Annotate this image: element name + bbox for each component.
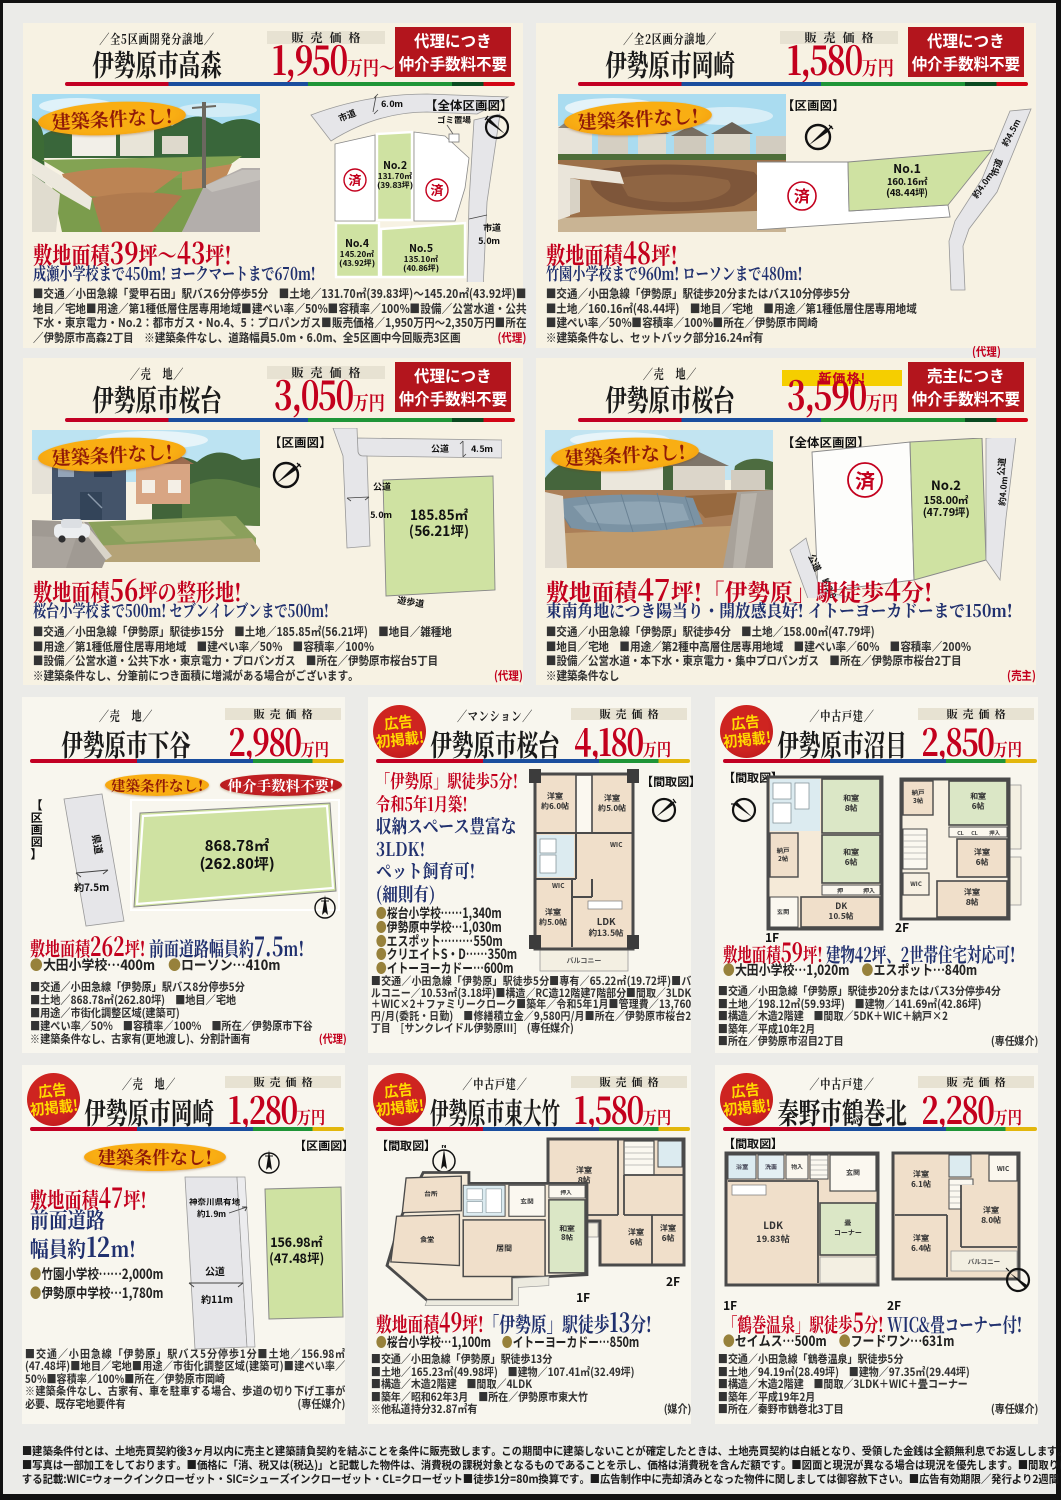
svg-text:公道: 公道	[205, 1263, 226, 1278]
svg-text:(262.80坪): (262.80坪)	[199, 853, 275, 874]
svg-text:バルコニー: バルコニー	[567, 956, 602, 966]
svg-text:10.5帖: 10.5帖	[829, 911, 854, 922]
svg-text:6帖: 6帖	[662, 1233, 675, 1244]
svg-text:約13.5帖: 約13.5帖	[589, 927, 624, 939]
svg-text:押: 押	[837, 886, 844, 895]
svg-text:(48.44坪): (48.44坪)	[886, 185, 929, 199]
svg-text:約7.5m: 約7.5m	[74, 879, 109, 894]
svg-text:6帖: 6帖	[630, 1237, 643, 1248]
svg-text:市道: 市道	[483, 221, 501, 234]
svg-text:WIC: WIC	[552, 880, 564, 890]
svg-text:6.0m: 6.0m	[381, 97, 404, 110]
svg-text:3帖: 3帖	[912, 795, 924, 805]
svg-text:済: 済	[855, 465, 875, 494]
svg-text:6.4帖: 6.4帖	[911, 1243, 931, 1254]
svg-text:19.83帖: 19.83帖	[756, 1232, 789, 1245]
svg-text:(39.83坪): (39.83坪)	[377, 180, 414, 191]
svg-text:済: 済	[348, 170, 361, 189]
svg-text:神奈川県有地: 神奈川県有地	[188, 1196, 241, 1208]
svg-text:居間: 居間	[495, 1243, 512, 1254]
svg-text:2帖: 2帖	[777, 853, 789, 863]
svg-text:食堂: 食堂	[420, 1235, 434, 1245]
svg-text:WIC: WIC	[910, 879, 921, 888]
svg-text:8.0帖: 8.0帖	[981, 1215, 1001, 1226]
svg-text:6帖: 6帖	[972, 801, 985, 812]
svg-text:8帖: 8帖	[845, 803, 858, 814]
svg-text:約11m: 約11m	[201, 1291, 233, 1306]
svg-text:済: 済	[794, 183, 810, 207]
svg-text:公道: 公道	[431, 442, 449, 455]
svg-text:物入: 物入	[791, 1162, 803, 1171]
svg-text:約4.0m: 約4.0m	[996, 475, 1011, 506]
svg-text:済: 済	[430, 180, 443, 199]
svg-text:WIC: WIC	[997, 1163, 1009, 1173]
svg-text:浴室: 浴室	[735, 1162, 749, 1171]
svg-text:公道: 公道	[994, 457, 1009, 476]
svg-text:N: N	[441, 1145, 446, 1151]
svg-text:台所: 台所	[423, 1188, 438, 1198]
svg-text:洗面: 洗面	[764, 1162, 777, 1171]
svg-text:6帖: 6帖	[976, 857, 989, 868]
svg-text:ゴミ置場: ゴミ置場	[437, 114, 472, 126]
svg-text:約5.0帖: 約5.0帖	[538, 917, 567, 928]
svg-text:(47.48坪): (47.48坪)	[269, 1248, 324, 1267]
svg-text:(47.79坪): (47.79坪)	[923, 505, 970, 520]
svg-text:押入: 押入	[560, 1189, 572, 1197]
svg-text:約6.0帖: 約6.0帖	[540, 801, 569, 812]
svg-text:(40.86坪): (40.86坪)	[403, 263, 440, 274]
svg-text:8帖: 8帖	[561, 1232, 574, 1243]
svg-text:No.2: No.2	[931, 475, 961, 494]
svg-text:5.0m: 5.0m	[370, 508, 393, 521]
svg-text:8帖: 8帖	[966, 897, 979, 908]
svg-text:(56.21坪): (56.21坪)	[409, 520, 469, 540]
svg-text:玄関: 玄関	[520, 1196, 534, 1206]
svg-text:約5.0帖: 約5.0帖	[597, 803, 626, 814]
svg-text:6.1帖: 6.1帖	[911, 1179, 931, 1190]
svg-text:公道: 公道	[373, 480, 391, 493]
svg-text:玄関: 玄関	[846, 1168, 860, 1178]
svg-text:4.5m: 4.5m	[471, 442, 494, 455]
svg-text:バルコニー: バルコニー	[968, 1256, 1001, 1266]
svg-text:畳: 畳	[845, 1218, 852, 1228]
svg-text:玄関: 玄関	[776, 907, 789, 916]
svg-text:CL: CL	[957, 829, 964, 837]
svg-text:LDK: LDK	[763, 1217, 784, 1232]
svg-text:5.0m: 5.0m	[478, 234, 501, 247]
svg-text:遊歩道: 遊歩道	[396, 593, 426, 608]
svg-text:6帖: 6帖	[845, 857, 858, 868]
svg-text:(43.92坪): (43.92坪)	[339, 258, 376, 269]
svg-text:押入: 押入	[989, 829, 1001, 837]
svg-text:LDK: LDK	[597, 914, 616, 928]
svg-text:押入: 押入	[863, 886, 875, 895]
svg-text:WIC: WIC	[610, 839, 622, 849]
svg-text:コーナー: コーナー	[834, 1228, 862, 1238]
svg-text:約1.9m: 約1.9m	[197, 1208, 227, 1220]
svg-text:CL: CL	[971, 829, 978, 837]
